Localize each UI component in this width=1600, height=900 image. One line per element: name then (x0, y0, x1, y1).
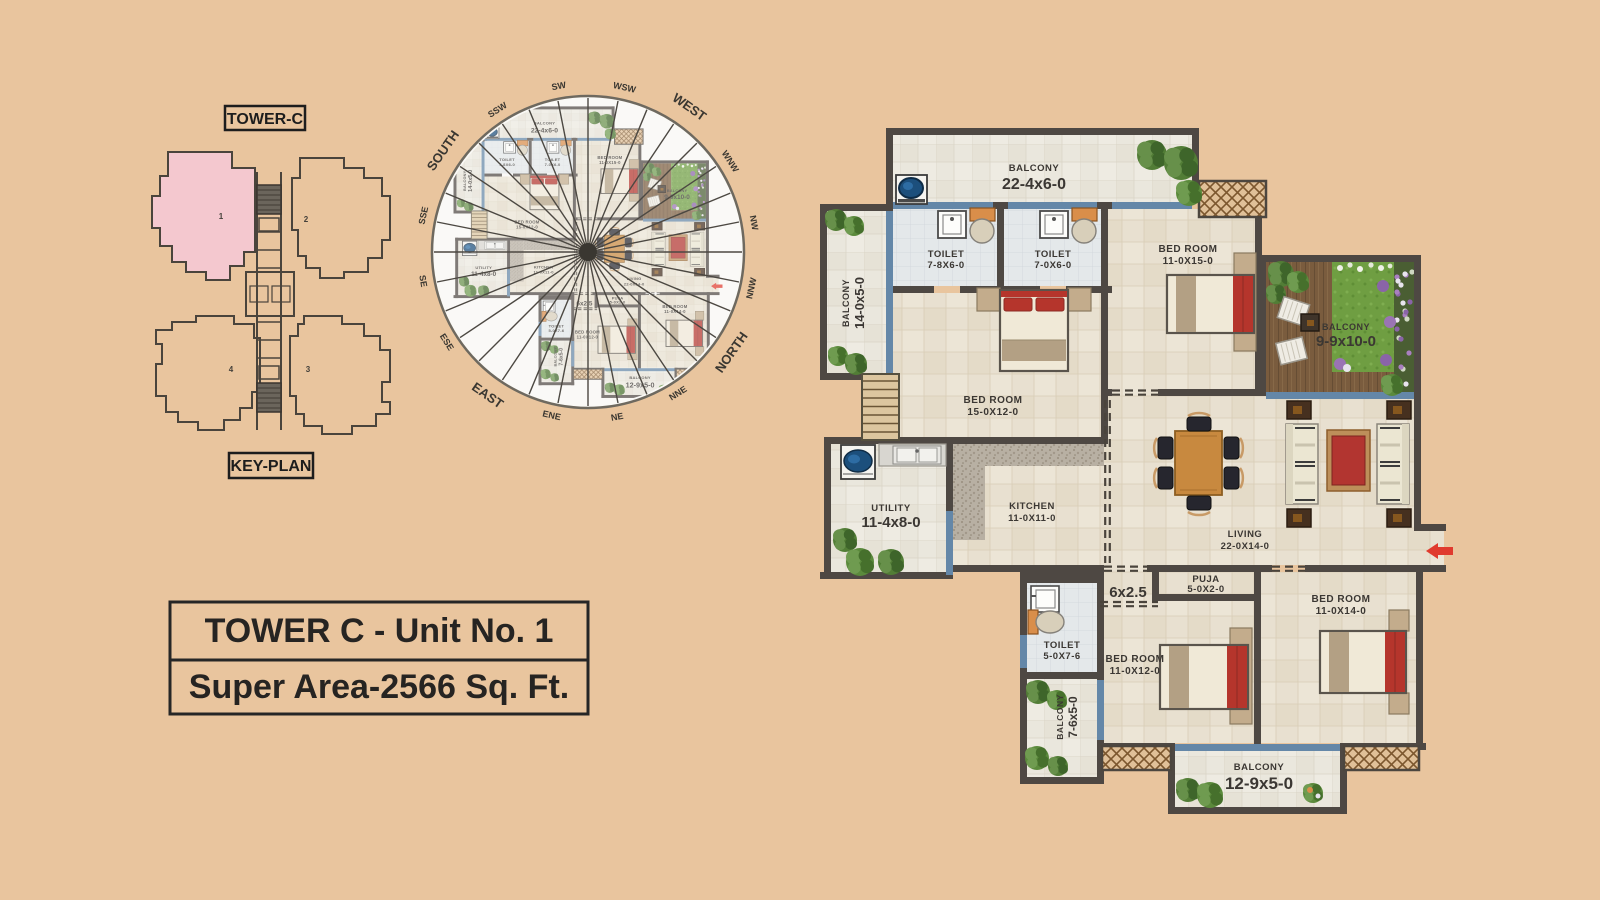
svg-text:BALCONY: BALCONY (1055, 694, 1065, 740)
svg-text:5-0X7-6: 5-0X7-6 (1043, 651, 1080, 662)
svg-text:6x2.5: 6x2.5 (1109, 584, 1147, 601)
svg-text:BED ROOM: BED ROOM (1106, 654, 1165, 665)
svg-text:TOILET: TOILET (1035, 249, 1072, 260)
svg-text:2: 2 (304, 215, 309, 224)
svg-text:NE: NE (610, 411, 624, 423)
svg-text:3: 3 (306, 365, 311, 374)
svg-text:BALCONY: BALCONY (1322, 322, 1370, 332)
svg-text:Super Area-2566 Sq. Ft.: Super Area-2566 Sq. Ft. (189, 668, 569, 706)
svg-text:5-0X2-0: 5-0X2-0 (1187, 584, 1224, 595)
svg-text:KITCHEN: KITCHEN (1009, 501, 1055, 512)
svg-text:22-0X14-0: 22-0X14-0 (1221, 541, 1270, 552)
svg-text:11-0X14-0: 11-0X14-0 (1316, 606, 1367, 617)
svg-text:7-8X6-0: 7-8X6-0 (927, 260, 964, 271)
svg-text:TOILET: TOILET (928, 249, 965, 260)
svg-text:TOWER C - Unit No. 1: TOWER C - Unit No. 1 (205, 612, 554, 650)
svg-text:LIVING: LIVING (1228, 529, 1263, 540)
svg-text:11-0X11-0: 11-0X11-0 (1008, 513, 1056, 524)
svg-text:TOILET: TOILET (1044, 640, 1081, 651)
svg-text:22-4x6-0: 22-4x6-0 (1002, 176, 1066, 193)
svg-text:BALCONY: BALCONY (841, 279, 851, 327)
svg-text:7-0X6-0: 7-0X6-0 (1034, 260, 1071, 271)
svg-text:1: 1 (219, 212, 224, 221)
svg-text:BALCONY: BALCONY (1234, 762, 1285, 773)
svg-text:TOWER-C: TOWER-C (227, 111, 304, 128)
svg-text:7-6x5-0: 7-6x5-0 (1066, 696, 1080, 738)
svg-text:15-0X12-0: 15-0X12-0 (967, 407, 1018, 418)
svg-text:KEY-PLAN: KEY-PLAN (231, 458, 312, 475)
svg-text:11-0X12-0: 11-0X12-0 (1110, 666, 1161, 677)
svg-text:SE: SE (417, 274, 429, 288)
svg-text:BED ROOM: BED ROOM (1159, 244, 1218, 255)
svg-text:BED ROOM: BED ROOM (964, 395, 1023, 406)
svg-text:BALCONY: BALCONY (1009, 163, 1060, 174)
svg-text:4: 4 (229, 365, 234, 374)
svg-text:BED ROOM: BED ROOM (1312, 594, 1371, 605)
svg-text:11-0X15-0: 11-0X15-0 (1163, 256, 1214, 267)
svg-text:14-0x5-0: 14-0x5-0 (852, 277, 867, 329)
svg-text:UTILITY: UTILITY (871, 503, 911, 514)
svg-text:11-4x8-0: 11-4x8-0 (861, 514, 920, 531)
svg-text:12-9x5-0: 12-9x5-0 (1225, 774, 1293, 793)
svg-text:9-9x10-0: 9-9x10-0 (1316, 333, 1376, 350)
